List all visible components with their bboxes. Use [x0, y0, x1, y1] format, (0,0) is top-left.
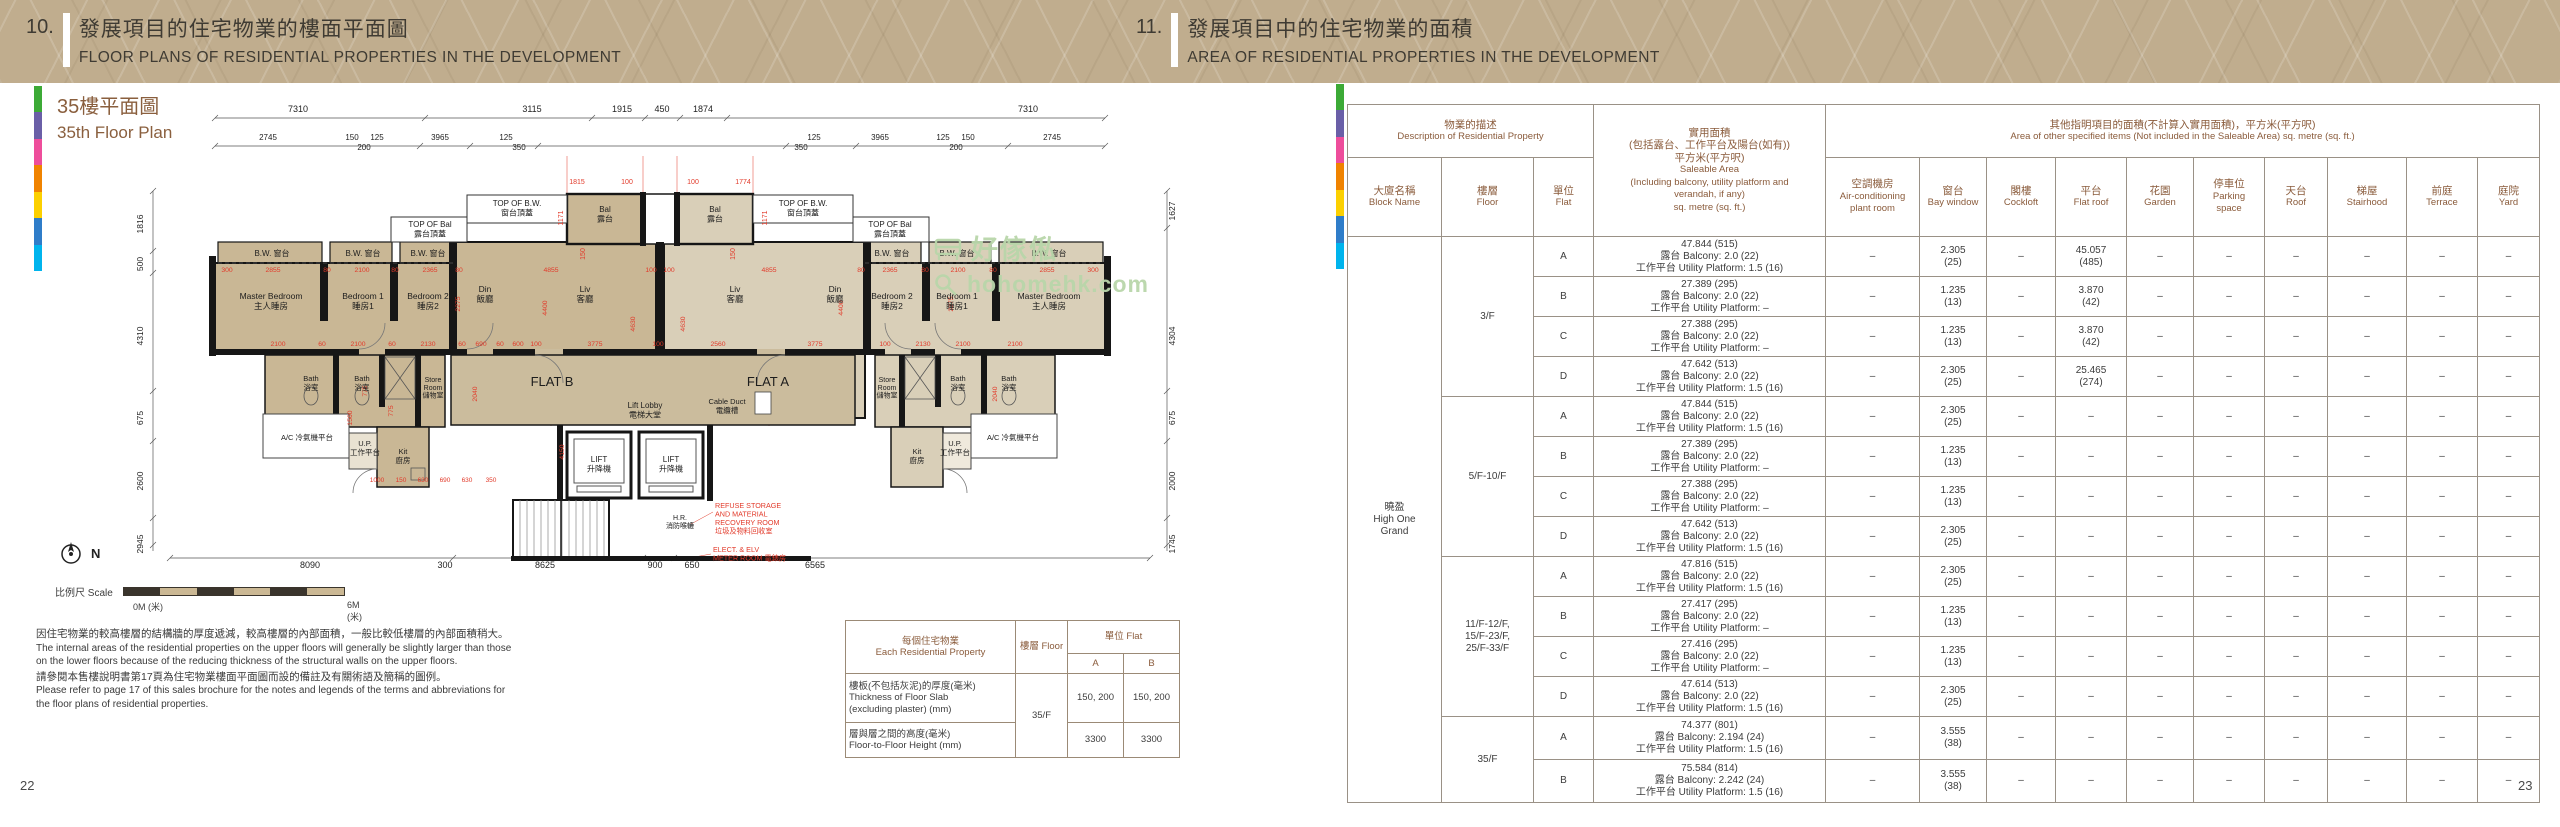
- item-header-8: 前庭Terrace: [2407, 158, 2478, 237]
- plan-text: H.R.消防喉轆: [666, 515, 694, 530]
- item-cell-5: –: [2194, 317, 2265, 357]
- item-cell-9: –: [2478, 277, 2540, 317]
- item-header-3: 平台Flat roof: [2056, 158, 2127, 237]
- plan-text: TOP OF Bal露台頂蓋: [408, 220, 451, 238]
- item-cell-3: 45.057(485): [2056, 237, 2127, 277]
- plan-text: 1874: [693, 104, 713, 114]
- item-cell-1: 2.305(25): [1920, 517, 1987, 557]
- item-cell-9: –: [2478, 237, 2540, 277]
- rainbow-segment-2: [1336, 137, 1344, 163]
- plan-text: B.W. 窗台: [874, 248, 909, 258]
- note-line-2: on the lower floors because of the reduc…: [36, 655, 576, 669]
- item-cell-8: –: [2407, 677, 2478, 717]
- flat-header: 單位Flat: [1534, 158, 1594, 237]
- item-cell-5: –: [2194, 717, 2265, 760]
- floor-plan-notes: 因住宅物業的較高樓層的結構牆的厚度遞減，較高樓層的內部面積，一般比較低樓層的內部…: [36, 626, 576, 711]
- item-header-5: 停車位Parkingspace: [2194, 158, 2265, 237]
- flat-cell: D: [1534, 677, 1594, 717]
- plan-text: 1000: [370, 477, 385, 484]
- item-cell-4: –: [2127, 357, 2194, 397]
- flat-cell: A: [1534, 237, 1594, 277]
- rainbow-strip-left: [34, 86, 42, 271]
- plan-text: Bal露台: [597, 205, 613, 223]
- plan-text: 600: [512, 341, 524, 348]
- page-number-right: 23: [2518, 778, 2532, 793]
- slab-header-property: 每個住宅物業Each Residential Property: [846, 621, 1016, 674]
- area-of-residential-properties-table: 物業的描述Description of Residential Property…: [1347, 104, 2540, 803]
- plan-text: 60: [388, 341, 396, 348]
- scale-bar-segments: [123, 587, 345, 596]
- plan-text: 2130: [915, 341, 930, 348]
- item-cell-9: –: [2478, 517, 2540, 557]
- plan-text: 80: [857, 267, 865, 274]
- saleable-area-cell: 27.388 (295)露台 Balcony: 2.0 (22)工作平台 Uti…: [1594, 317, 1826, 357]
- plan-text: 3775: [587, 341, 602, 348]
- slab-floor-value: 35/F: [1016, 674, 1068, 758]
- item-cell-5: –: [2194, 477, 2265, 517]
- item-cell-5: –: [2194, 557, 2265, 597]
- plan-text: 2365: [422, 267, 437, 274]
- saleable-area-cell: 74.377 (801)露台 Balcony: 2.194 (24)工作平台 U…: [1594, 717, 1826, 760]
- flat-cell: B: [1534, 277, 1594, 317]
- plan-text: 350: [486, 477, 497, 484]
- saleable-area-cell: 27.389 (295)露台 Balcony: 2.0 (22)工作平台 Uti…: [1594, 437, 1826, 477]
- item-cell-6: –: [2265, 317, 2328, 357]
- flat-cell: D: [1534, 517, 1594, 557]
- rainbow-segment-0: [1336, 84, 1344, 110]
- page-number-left: 22: [20, 778, 34, 793]
- rainbow-segment-0: [34, 86, 42, 112]
- saleable-area-cell: 47.642 (513)露台 Balcony: 2.0 (22)工作平台 Uti…: [1594, 357, 1826, 397]
- item-cell-5: –: [2194, 517, 2265, 557]
- furniture-icon: [933, 235, 963, 261]
- plan-text: 1171: [762, 210, 769, 225]
- item-cell-0: –: [1826, 717, 1920, 760]
- item-cell-4: –: [2127, 597, 2194, 637]
- item-cell-9: –: [2478, 677, 2540, 717]
- plan-text: 4400: [542, 300, 549, 315]
- item-cell-3: 3.870(42): [2056, 317, 2127, 357]
- item-cell-1: 2.305(25): [1920, 397, 1987, 437]
- item-cell-0: –: [1826, 317, 1920, 357]
- flat-cell: D: [1534, 357, 1594, 397]
- item-cell-4: –: [2127, 717, 2194, 760]
- item-header-6: 天台Roof: [2265, 158, 2328, 237]
- item-cell-8: –: [2407, 557, 2478, 597]
- item-cell-6: –: [2265, 437, 2328, 477]
- rainbow-segment-1: [34, 112, 42, 138]
- item-cell-4: –: [2127, 437, 2194, 477]
- plan-text: 4630: [680, 316, 687, 331]
- item-header-1: 窗台Bay window: [1920, 158, 1987, 237]
- block-name-header: 大廈名稱Block Name: [1348, 158, 1442, 237]
- plan-text: 675: [1167, 411, 1177, 425]
- plan-text: 100: [687, 179, 699, 186]
- item-cell-8: –: [2407, 277, 2478, 317]
- rainbow-strip-right: [1336, 84, 1344, 269]
- plan-text: 500: [135, 257, 145, 271]
- rainbow-segment-6: [1336, 243, 1344, 269]
- plan-text: 2745: [1043, 133, 1061, 142]
- item-cell-1: 2.305(25): [1920, 237, 1987, 277]
- plan-text: B.W. 窗台: [345, 248, 380, 258]
- item-cell-0: –: [1826, 557, 1920, 597]
- plan-text: 630: [462, 477, 473, 484]
- floor-header: 樓層Floor: [1442, 158, 1534, 237]
- flat-cell: B: [1534, 597, 1594, 637]
- item-cell-2: –: [1987, 237, 2056, 277]
- plan-text: 4855: [543, 267, 558, 274]
- item-cell-7: –: [2328, 237, 2407, 277]
- item-cell-3: –: [2056, 637, 2127, 677]
- plan-text: 8625: [535, 560, 555, 570]
- plan-text: 1915: [612, 104, 632, 114]
- item-cell-1: 1.235(13): [1920, 637, 1987, 677]
- item-cell-6: –: [2265, 557, 2328, 597]
- plan-text: StoreRoom儲物室: [877, 377, 898, 400]
- item-cell-8: –: [2407, 717, 2478, 760]
- compass-label: N: [91, 546, 100, 561]
- item-cell-3: –: [2056, 760, 2127, 803]
- item-cell-3: 3.870(42): [2056, 277, 2127, 317]
- scale-segment-2: [197, 588, 234, 595]
- item-cell-4: –: [2127, 517, 2194, 557]
- rainbow-segment-2: [34, 139, 42, 165]
- plan-text: 3775: [807, 341, 822, 348]
- plan-text: 3965: [431, 133, 449, 142]
- floor-cell-35f: 35/F: [1442, 717, 1534, 803]
- item-cell-1: 1.235(13): [1920, 437, 1987, 477]
- saleable-area-cell: 47.844 (515)露台 Balcony: 2.0 (22)工作平台 Uti…: [1594, 237, 1826, 277]
- plan-text: 4630: [630, 316, 637, 331]
- plan-text: B.W. 窗台: [410, 248, 445, 258]
- saleable-area-cell: 27.388 (295)露台 Balcony: 2.0 (22)工作平台 Uti…: [1594, 477, 1826, 517]
- watermark-site: hohomehk.com: [967, 271, 1149, 298]
- plan-text: 60: [458, 341, 466, 348]
- plan-text: 7310: [1018, 104, 1038, 114]
- item-cell-4: –: [2127, 637, 2194, 677]
- slab-row1-label: 樓板(不包括灰泥)的厚度(毫米)Thickness of Floor Slab(…: [846, 674, 1016, 723]
- plan-text: 2100: [1007, 341, 1022, 348]
- plan-text: B.W. 窗台: [254, 248, 289, 258]
- rainbow-segment-1: [1336, 110, 1344, 136]
- item-cell-0: –: [1826, 277, 1920, 317]
- area-row-35f-A: 35/FA74.377 (801)露台 Balcony: 2.194 (24)工…: [1348, 717, 2540, 760]
- plan-text: 2365: [882, 267, 897, 274]
- other-items-header: 其他指明項目的面積(不計算入實用面積)，平方米(平方呎)Area of othe…: [1826, 105, 2540, 158]
- floor-plan-drawing: 7310311519154501874731027451501252003965…: [115, 96, 1205, 576]
- item-cell-5: –: [2194, 237, 2265, 277]
- plan-text: 125: [499, 133, 513, 142]
- plan-text: 2040: [472, 386, 479, 401]
- plan-text: 900: [647, 560, 662, 570]
- plan-text: 4855: [761, 267, 776, 274]
- rainbow-segment-6: [34, 245, 42, 271]
- block-name-cell: 曉盈High OneGrand: [1348, 237, 1442, 803]
- item-cell-7: –: [2328, 357, 2407, 397]
- flat-cell: C: [1534, 317, 1594, 357]
- scale-segment-3: [234, 588, 271, 595]
- item-cell-6: –: [2265, 677, 2328, 717]
- plan-text: REFUSE STORAGEAND MATERIALRECOVERY ROOM垃…: [715, 501, 781, 536]
- item-cell-2: –: [1987, 317, 2056, 357]
- item-cell-6: –: [2265, 637, 2328, 677]
- item-cell-9: –: [2478, 397, 2540, 437]
- item-cell-2: –: [1987, 760, 2056, 803]
- plan-text: Din飯廳: [476, 284, 494, 304]
- item-cell-9: –: [2478, 557, 2540, 597]
- item-cell-3: –: [2056, 597, 2127, 637]
- plan-text: Bath浴室: [1001, 374, 1017, 392]
- item-cell-1: 2.305(25): [1920, 357, 1987, 397]
- left-title-zh: 發展項目的住宅物業的樓面平面圖: [79, 13, 621, 43]
- item-cell-5: –: [2194, 637, 2265, 677]
- plan-text: 80: [455, 267, 463, 274]
- rainbow-segment-3: [34, 165, 42, 191]
- plan-text: Lift Lobby電梯大堂: [628, 401, 663, 419]
- item-cell-1: 3.555(38): [1920, 760, 1987, 803]
- plan-text: A/C 冷氣機平台: [987, 432, 1039, 442]
- item-cell-4: –: [2127, 760, 2194, 803]
- item-cell-7: –: [2328, 677, 2407, 717]
- plan-text: ELECT. & ELVMETER ROOM 電錶房: [713, 545, 786, 563]
- section-number-left: 10.: [26, 13, 54, 67]
- scale-label: 比例尺 Scale: [55, 584, 113, 599]
- plan-text: Bath浴室: [354, 374, 370, 392]
- item-cell-0: –: [1826, 677, 1920, 717]
- item-cell-8: –: [2407, 597, 2478, 637]
- plan-text: 450: [654, 104, 669, 114]
- plan-text: 80: [391, 267, 399, 274]
- compass: N: [56, 538, 100, 568]
- plan-text: 7310: [288, 104, 308, 114]
- item-cell-6: –: [2265, 717, 2328, 760]
- item-cell-3: –: [2056, 397, 2127, 437]
- item-cell-3: –: [2056, 677, 2127, 717]
- plan-text: 125: [936, 133, 950, 142]
- compass-icon: [56, 538, 86, 568]
- plan-text: 200: [949, 143, 963, 152]
- plan-text: 650: [684, 560, 699, 570]
- note-line-3: 請參閱本售樓說明書第17頁為住宅物業樓面平面圖而設的備註及有關術語及簡稱的圖例。: [36, 671, 576, 685]
- item-cell-4: –: [2127, 397, 2194, 437]
- item-cell-1: 2.305(25): [1920, 557, 1987, 597]
- right-title-en: AREA OF RESIDENTIAL PROPERTIES IN THE DE…: [1187, 49, 1659, 67]
- flat-cell: A: [1534, 717, 1594, 760]
- item-cell-3: –: [2056, 517, 2127, 557]
- watermark: 好傢俬 hohomehk.com: [933, 228, 1149, 298]
- flat-a-services: [875, 355, 1057, 487]
- rainbow-segment-5: [34, 218, 42, 244]
- saleable-area-cell: 47.816 (515)露台 Balcony: 2.0 (22)工作平台 Uti…: [1594, 557, 1826, 597]
- item-cell-3: –: [2056, 477, 2127, 517]
- slab-header-flat-b: B: [1124, 654, 1180, 674]
- item-cell-0: –: [1826, 760, 1920, 803]
- section-number-right: 11.: [1136, 13, 1162, 67]
- item-cell-8: –: [2407, 637, 2478, 677]
- item-cell-9: –: [2478, 437, 2540, 477]
- plan-text: 4310: [135, 326, 145, 345]
- item-cell-0: –: [1826, 517, 1920, 557]
- plan-text: 350: [512, 143, 526, 152]
- plan-text: Bal露台: [707, 205, 723, 223]
- plan-text: 1171: [558, 210, 565, 225]
- plan-text: 100: [621, 179, 633, 186]
- item-cell-9: –: [2478, 637, 2540, 677]
- item-cell-7: –: [2328, 437, 2407, 477]
- flat-cell: A: [1534, 397, 1594, 437]
- item-cell-7: –: [2328, 517, 2407, 557]
- slab-row2-label: 層與層之間的高度(毫米)Floor-to-Floor Height (mm): [846, 723, 1016, 758]
- plan-text: 100: [645, 267, 657, 274]
- plan-text: 60: [496, 341, 504, 348]
- heading-divider-left: [63, 13, 70, 67]
- floor-cell-11f33f: 11/F-12/F,15/F-23/F,25/F-33/F: [1442, 557, 1534, 717]
- slab-row1-a: 150, 200: [1068, 674, 1124, 723]
- item-cell-9: –: [2478, 477, 2540, 517]
- plan-text: TOP OF Bal露台頂蓋: [868, 220, 911, 238]
- plan-text: 2000: [1167, 471, 1177, 490]
- item-cell-4: –: [2127, 237, 2194, 277]
- slab-row2-a: 3300: [1068, 723, 1124, 758]
- desc-header: 物業的描述Description of Residential Property: [1348, 105, 1594, 158]
- item-cell-5: –: [2194, 277, 2265, 317]
- saleable-area-cell: 47.844 (515)露台 Balcony: 2.0 (22)工作平台 Uti…: [1594, 397, 1826, 437]
- floor-cell-5f10f: 5/F-10/F: [1442, 397, 1534, 557]
- saleable-area-cell: 47.642 (513)露台 Balcony: 2.0 (22)工作平台 Uti…: [1594, 517, 1826, 557]
- item-cell-8: –: [2407, 397, 2478, 437]
- item-cell-2: –: [1987, 677, 2056, 717]
- item-cell-7: –: [2328, 397, 2407, 437]
- item-cell-7: –: [2328, 717, 2407, 760]
- item-cell-0: –: [1826, 597, 1920, 637]
- plan-text: Din飯廳: [826, 284, 844, 304]
- item-cell-7: –: [2328, 637, 2407, 677]
- plan-text: 100: [663, 267, 675, 274]
- item-cell-2: –: [1987, 637, 2056, 677]
- item-cell-5: –: [2194, 357, 2265, 397]
- item-cell-6: –: [2265, 237, 2328, 277]
- item-cell-4: –: [2127, 317, 2194, 357]
- plan-text: 2100: [350, 341, 365, 348]
- saleable-area-cell: 75.584 (814)露台 Balcony: 2.242 (24)工作平台 U…: [1594, 760, 1826, 803]
- scale-segment-1: [160, 588, 197, 595]
- plan-text: 2855: [265, 267, 280, 274]
- item-cell-0: –: [1826, 437, 1920, 477]
- note-line-0: 因住宅物業的較高樓層的結構牆的厚度遞減，較高樓層的內部面積，一般比較低樓層的內部…: [36, 628, 576, 642]
- item-cell-6: –: [2265, 517, 2328, 557]
- item-cell-6: –: [2265, 760, 2328, 803]
- scale-six-label: 6M (米): [347, 600, 367, 623]
- item-cell-6: –: [2265, 597, 2328, 637]
- item-cell-9: –: [2478, 317, 2540, 357]
- plan-text: 300: [437, 560, 452, 570]
- item-cell-8: –: [2407, 317, 2478, 357]
- item-cell-0: –: [1826, 637, 1920, 677]
- plan-text: 4150: [559, 444, 566, 459]
- plan-text: 2130: [420, 341, 435, 348]
- plan-text: 150: [961, 133, 975, 142]
- flat-cell: B: [1534, 760, 1594, 803]
- heading-divider-right: [1171, 13, 1178, 67]
- plan-text: A/C 冷氣機平台: [281, 432, 333, 442]
- item-header-7: 梯屋Stairhood: [2328, 158, 2407, 237]
- item-header-9: 庭院Yard: [2478, 158, 2540, 237]
- item-cell-3: –: [2056, 557, 2127, 597]
- item-cell-7: –: [2328, 557, 2407, 597]
- plan-text: 690: [475, 341, 487, 348]
- plan-text: 1745: [1167, 534, 1177, 553]
- note-line-4: Please refer to page 17 of this sales br…: [36, 684, 576, 698]
- item-cell-9: –: [2478, 717, 2540, 760]
- left-title-en: FLOOR PLANS OF RESIDENTIAL PROPERTIES IN…: [79, 49, 621, 67]
- plan-text: 125: [370, 133, 384, 142]
- plan-text: 60: [318, 341, 326, 348]
- item-cell-5: –: [2194, 760, 2265, 803]
- item-cell-8: –: [2407, 357, 2478, 397]
- plan-text: 150: [345, 133, 359, 142]
- flat-cell: C: [1534, 637, 1594, 677]
- plan-text: StoreRoom儲物室: [423, 377, 444, 400]
- area-row-11f33f-A: 11/F-12/F,15/F-23/F,25/F-33/FA47.816 (51…: [1348, 557, 2540, 597]
- item-cell-9: –: [2478, 597, 2540, 637]
- section-11-heading: 11. 發展項目中的住宅物業的面積 AREA OF RESIDENTIAL PR…: [1136, 13, 1660, 67]
- saleable-area-cell: 27.389 (295)露台 Balcony: 2.0 (22)工作平台 Uti…: [1594, 277, 1826, 317]
- rainbow-segment-4: [34, 192, 42, 218]
- item-cell-4: –: [2127, 277, 2194, 317]
- plan-text: 80: [323, 267, 331, 274]
- plan-text: 2600: [135, 471, 145, 490]
- plan-text: 150: [730, 248, 737, 260]
- item-cell-3: 25.465(274): [2056, 357, 2127, 397]
- saleable-area-cell: 27.417 (295)露台 Balcony: 2.0 (22)工作平台 Uti…: [1594, 597, 1826, 637]
- item-cell-1: 1.235(13): [1920, 477, 1987, 517]
- item-cell-1: 1.235(13): [1920, 597, 1987, 637]
- item-cell-3: –: [2056, 717, 2127, 760]
- plan-text: 300: [221, 267, 233, 274]
- rainbow-segment-3: [1336, 163, 1344, 189]
- rainbow-segment-5: [1336, 216, 1344, 242]
- plan-text: 100: [879, 341, 891, 348]
- plan-text: 690: [440, 477, 451, 484]
- area-row-3f-A: 曉盈High OneGrand3/FA47.844 (515)露台 Balcon…: [1348, 237, 2540, 277]
- scale-segment-5: [307, 588, 344, 595]
- slab-header-flat: 單位 Flat: [1068, 621, 1180, 654]
- plan-text: 4304: [1167, 326, 1177, 345]
- item-cell-1: 3.555(38): [1920, 717, 1987, 760]
- plan-text: FLAT B: [531, 374, 574, 389]
- slab-thickness-table: 每個住宅物業Each Residential Property 樓層 Floor…: [845, 620, 1180, 758]
- item-cell-1: 1.235(13): [1920, 277, 1987, 317]
- item-cell-5: –: [2194, 437, 2265, 477]
- plan-text: 2275: [455, 296, 462, 311]
- plan-text: 150: [580, 248, 587, 260]
- item-cell-8: –: [2407, 760, 2478, 803]
- item-cell-7: –: [2328, 760, 2407, 803]
- item-header-2: 閣樓Cockloft: [1987, 158, 2056, 237]
- item-cell-1: 2.305(25): [1920, 677, 1987, 717]
- plan-text: 2560: [710, 341, 725, 348]
- plan-text: 200: [357, 143, 371, 152]
- item-cell-2: –: [1987, 717, 2056, 760]
- plan-text: 2100: [955, 341, 970, 348]
- plan-text: 2745: [259, 133, 277, 142]
- scale-segment-4: [270, 588, 307, 595]
- plan-text: 1816: [135, 214, 145, 233]
- plan-text: 1500: [347, 410, 354, 425]
- plan-text: 80: [921, 267, 929, 274]
- flat-cell: A: [1534, 557, 1594, 597]
